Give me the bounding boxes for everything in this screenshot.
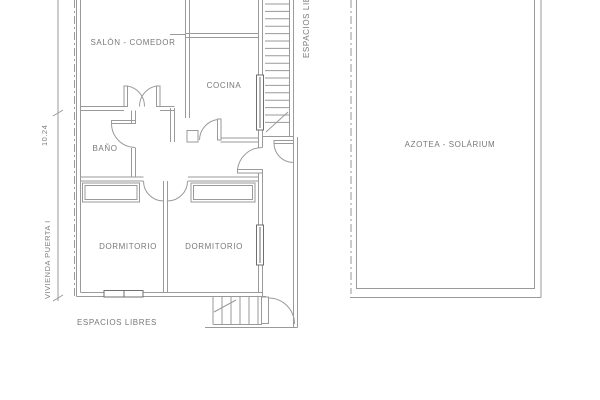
window-cocina [257,75,264,130]
room-label-dormitorio-1: DORMITORIO [99,242,157,251]
plan-title-vivienda-puerta-1: VIVIENDA PUERTA I [43,220,52,299]
door-dormitorio-2 [168,181,188,201]
dimension-line [53,0,63,301]
room-label-cocina: COCINA [207,81,242,90]
door-patio-lower [262,297,295,324]
closet-dormitorio-1 [83,183,140,202]
room-label-salon-comedor: SALÓN - COMEDOR [90,38,175,47]
patio-boundary [205,137,298,328]
staircase-exterior [213,297,262,325]
door-salon [124,86,160,107]
area-label-espacios-libres: ESPACIOS LIBRES [77,318,157,327]
window-dormitorio-2 [257,225,264,265]
staircase-upper [263,0,294,137]
window-dormitorio-1 [104,291,143,298]
room-label-azotea-solarium: AZOTEA - SOLÁRIUM [405,140,496,149]
closet-dormitorio-2 [191,183,255,202]
room-label-bano: BAÑO [92,144,117,153]
stair-break-line [214,300,236,312]
area-label-espacios-libres-vertical: ESPACIOS LIBRES [302,0,311,58]
room-label-dormitorio-2: DORMITORIO [185,242,243,251]
door-hall-patio [238,147,263,173]
door-patio-upper [274,141,294,163]
floor-plan-drawing: SALÓN - COMEDOR COCINA BAÑO DORMITORIO D… [0,0,600,400]
floor-plan-canvas: SALÓN - COMEDOR COCINA BAÑO DORMITORIO D… [0,0,600,400]
door-dormitorio-1 [144,181,164,201]
door-cocina [200,119,222,140]
labels: SALÓN - COMEDOR COCINA BAÑO DORMITORIO D… [40,0,495,327]
dimension-value: 10.24 [40,125,49,146]
